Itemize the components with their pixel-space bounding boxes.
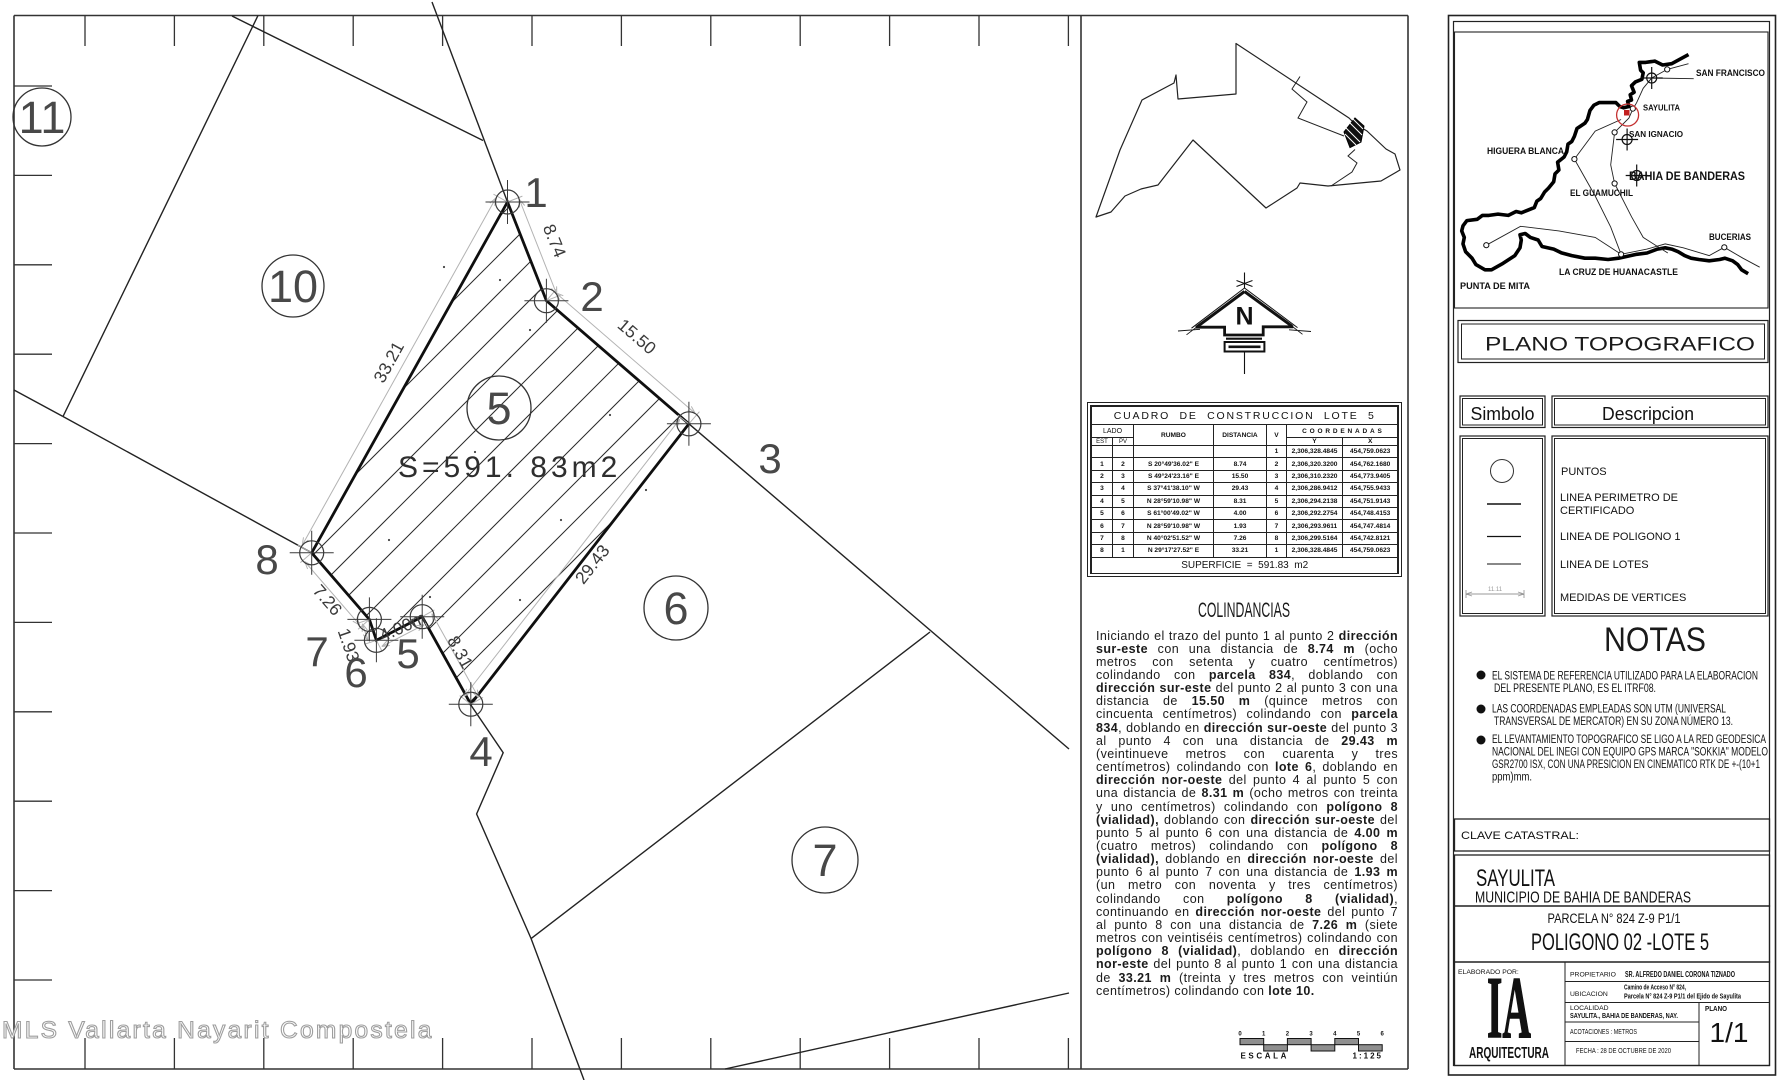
- svg-text:N: N: [1235, 303, 1253, 331]
- svg-text:4: 4: [469, 728, 492, 775]
- svg-text:Parcela N° 824 Z-9 P1/1 del Ej: Parcela N° 824 Z-9 P1/1 del Ejido de Say…: [1624, 993, 1741, 1001]
- svg-text:EL GUAMUCHIL: EL GUAMUCHIL: [1570, 188, 1633, 198]
- svg-text:5: 5: [486, 383, 511, 434]
- svg-text:29.43: 29.43: [571, 541, 614, 588]
- svg-text:POLIGONO 02 -LOTE 5: POLIGONO 02 -LOTE 5: [1531, 929, 1709, 956]
- svg-text:7: 7: [305, 628, 328, 675]
- svg-text:CLAVE CATASTRAL:: CLAVE CATASTRAL:: [1461, 830, 1579, 842]
- svg-text:IA: IA: [1487, 960, 1531, 1057]
- svg-text:LINEA DE LOTES: LINEA DE LOTES: [1560, 559, 1649, 571]
- svg-text:1:125: 1:125: [1353, 1052, 1383, 1061]
- svg-text:LA CRUZ DE HUANACASTLE: LA CRUZ DE HUANACASTLE: [1559, 267, 1678, 278]
- svg-text:SAN IGNACIO: SAN IGNACIO: [1629, 129, 1683, 139]
- svg-text:SAYULITA., BAHIA DE BANDERAS,: SAYULITA., BAHIA DE BANDERAS, NAY.: [1570, 1011, 1678, 1020]
- svg-text:NOTAS: NOTAS: [1604, 621, 1706, 659]
- svg-text:EL LEVANTAMIENTO TOPOGRAFICO: EL LEVANTAMIENTO TOPOGRAFICO SE LIGO A L…: [1492, 734, 1766, 746]
- svg-text:EL SISTEMA DE REFERENCIA UTILI: EL SISTEMA DE REFERENCIA UTILIZADO PARA …: [1492, 671, 1758, 683]
- svg-text:HIGUERA BLANCA: HIGUERA BLANCA: [1487, 146, 1564, 156]
- svg-text:4: 4: [1333, 1032, 1337, 1038]
- svg-text:1: 1: [524, 169, 547, 216]
- svg-text:7: 7: [812, 835, 837, 886]
- svg-text:5: 5: [1357, 1032, 1361, 1038]
- svg-text:GSR2700 ISX, CON UNA PRESICION: GSR2700 ISX, CON UNA PRESICION EN CINEMA…: [1492, 759, 1760, 771]
- svg-text:Simbolo: Simbolo: [1471, 404, 1535, 424]
- svg-text:8: 8: [255, 536, 278, 583]
- svg-text:2: 2: [1286, 1032, 1290, 1038]
- svg-text:3: 3: [758, 435, 781, 482]
- svg-text:11: 11: [19, 92, 66, 143]
- svg-text:11.11: 11.11: [1488, 587, 1503, 593]
- svg-text:PARCELA N° 824 Z-9 P1/1: PARCELA N° 824 Z-9 P1/1: [1548, 911, 1681, 926]
- svg-text:8.74: 8.74: [539, 221, 570, 260]
- svg-text:PUNTA DE MITA: PUNTA DE MITA: [1460, 281, 1530, 292]
- svg-text:Camino de Acceso N° 824,: Camino de Acceso N° 824,: [1624, 984, 1686, 992]
- svg-text:0: 0: [1238, 1032, 1242, 1038]
- svg-text:ACOTACIONES : METROS: ACOTACIONES : METROS: [1570, 1029, 1637, 1036]
- svg-text:SAYULITA: SAYULITA: [1643, 103, 1680, 113]
- svg-text:Descripcion: Descripcion: [1602, 404, 1694, 424]
- svg-text:BUCERIAS: BUCERIAS: [1709, 232, 1751, 243]
- svg-text:ESCALA: ESCALA: [1241, 1052, 1290, 1061]
- svg-text:PROPIETARIO: PROPIETARIO: [1570, 972, 1616, 979]
- svg-text:LAS COORDENADAS EMPLEADAS SON: LAS COORDENADAS EMPLEADAS SON UTM (UNIVE…: [1492, 704, 1726, 716]
- svg-text:6: 6: [344, 649, 367, 696]
- svg-text:SAYULITA: SAYULITA: [1476, 865, 1555, 892]
- svg-text:PLANO: PLANO: [1705, 1004, 1727, 1013]
- svg-text:PLANO TOPOGRAFICO: PLANO TOPOGRAFICO: [1485, 335, 1755, 356]
- svg-text:ppm)mm.: ppm)mm.: [1492, 772, 1532, 784]
- svg-text:PUNTOS: PUNTOS: [1561, 466, 1607, 478]
- svg-text:2: 2: [580, 273, 603, 320]
- svg-text:DEL PRESENTE PLANO, ES EL ITRF: DEL PRESENTE PLANO, ES EL ITRF08.: [1494, 683, 1656, 695]
- svg-text:NACIONAL DEL INEGI CON EQUIPO: NACIONAL DEL INEGI CON EQUIPO GPS MARCA …: [1492, 747, 1768, 759]
- svg-text:LINEA DE POLIGONO 1: LINEA DE POLIGONO 1: [1560, 531, 1680, 543]
- svg-text:UBICACION: UBICACION: [1570, 991, 1608, 998]
- svg-text:6: 6: [663, 583, 688, 634]
- svg-text:COLINDANCIAS: COLINDANCIAS: [1198, 599, 1290, 622]
- svg-text:FECHA : 28 DE OCTUBRE DE 202: FECHA : 28 DE OCTUBRE DE 2020: [1576, 1048, 1671, 1055]
- svg-text:1: 1: [1262, 1032, 1266, 1038]
- svg-text:S=591. 83m2: S=591. 83m2: [398, 451, 621, 484]
- svg-text:SAN FRANCISCO: SAN FRANCISCO: [1696, 68, 1765, 78]
- svg-text:10: 10: [268, 261, 318, 312]
- svg-text:5: 5: [396, 630, 419, 677]
- svg-text:15.50: 15.50: [614, 315, 660, 359]
- svg-text:1/1: 1/1: [1710, 1017, 1749, 1048]
- svg-text:ARQUITECTURA: ARQUITECTURA: [1469, 1045, 1549, 1062]
- svg-text:LINEA PERIMETRO DE: LINEA PERIMETRO DE: [1560, 492, 1678, 504]
- svg-text:TRANSVERSAL DE MERCATOR) EN SU: TRANSVERSAL DE MERCATOR) EN SU ZONA NÚME…: [1494, 715, 1733, 728]
- svg-text:MEDIDAS DE VERTICES: MEDIDAS DE VERTICES: [1560, 592, 1686, 604]
- svg-text:CERTIFICADO: CERTIFICADO: [1560, 505, 1635, 517]
- svg-text:BAHIA DE BANDERAS: BAHIA DE BANDERAS: [1629, 171, 1745, 183]
- svg-text:33.21: 33.21: [369, 338, 408, 386]
- svg-text:6: 6: [1381, 1032, 1385, 1038]
- svg-text:SR. ALFREDO DANIEL CORONA TIZN: SR. ALFREDO DANIEL CORONA TIZNADO: [1625, 970, 1735, 979]
- svg-text:MUNICIPIO DE BAHIA DE BANDERAS: MUNICIPIO DE BAHIA DE BANDERAS: [1475, 890, 1691, 907]
- svg-text:3: 3: [1309, 1032, 1313, 1038]
